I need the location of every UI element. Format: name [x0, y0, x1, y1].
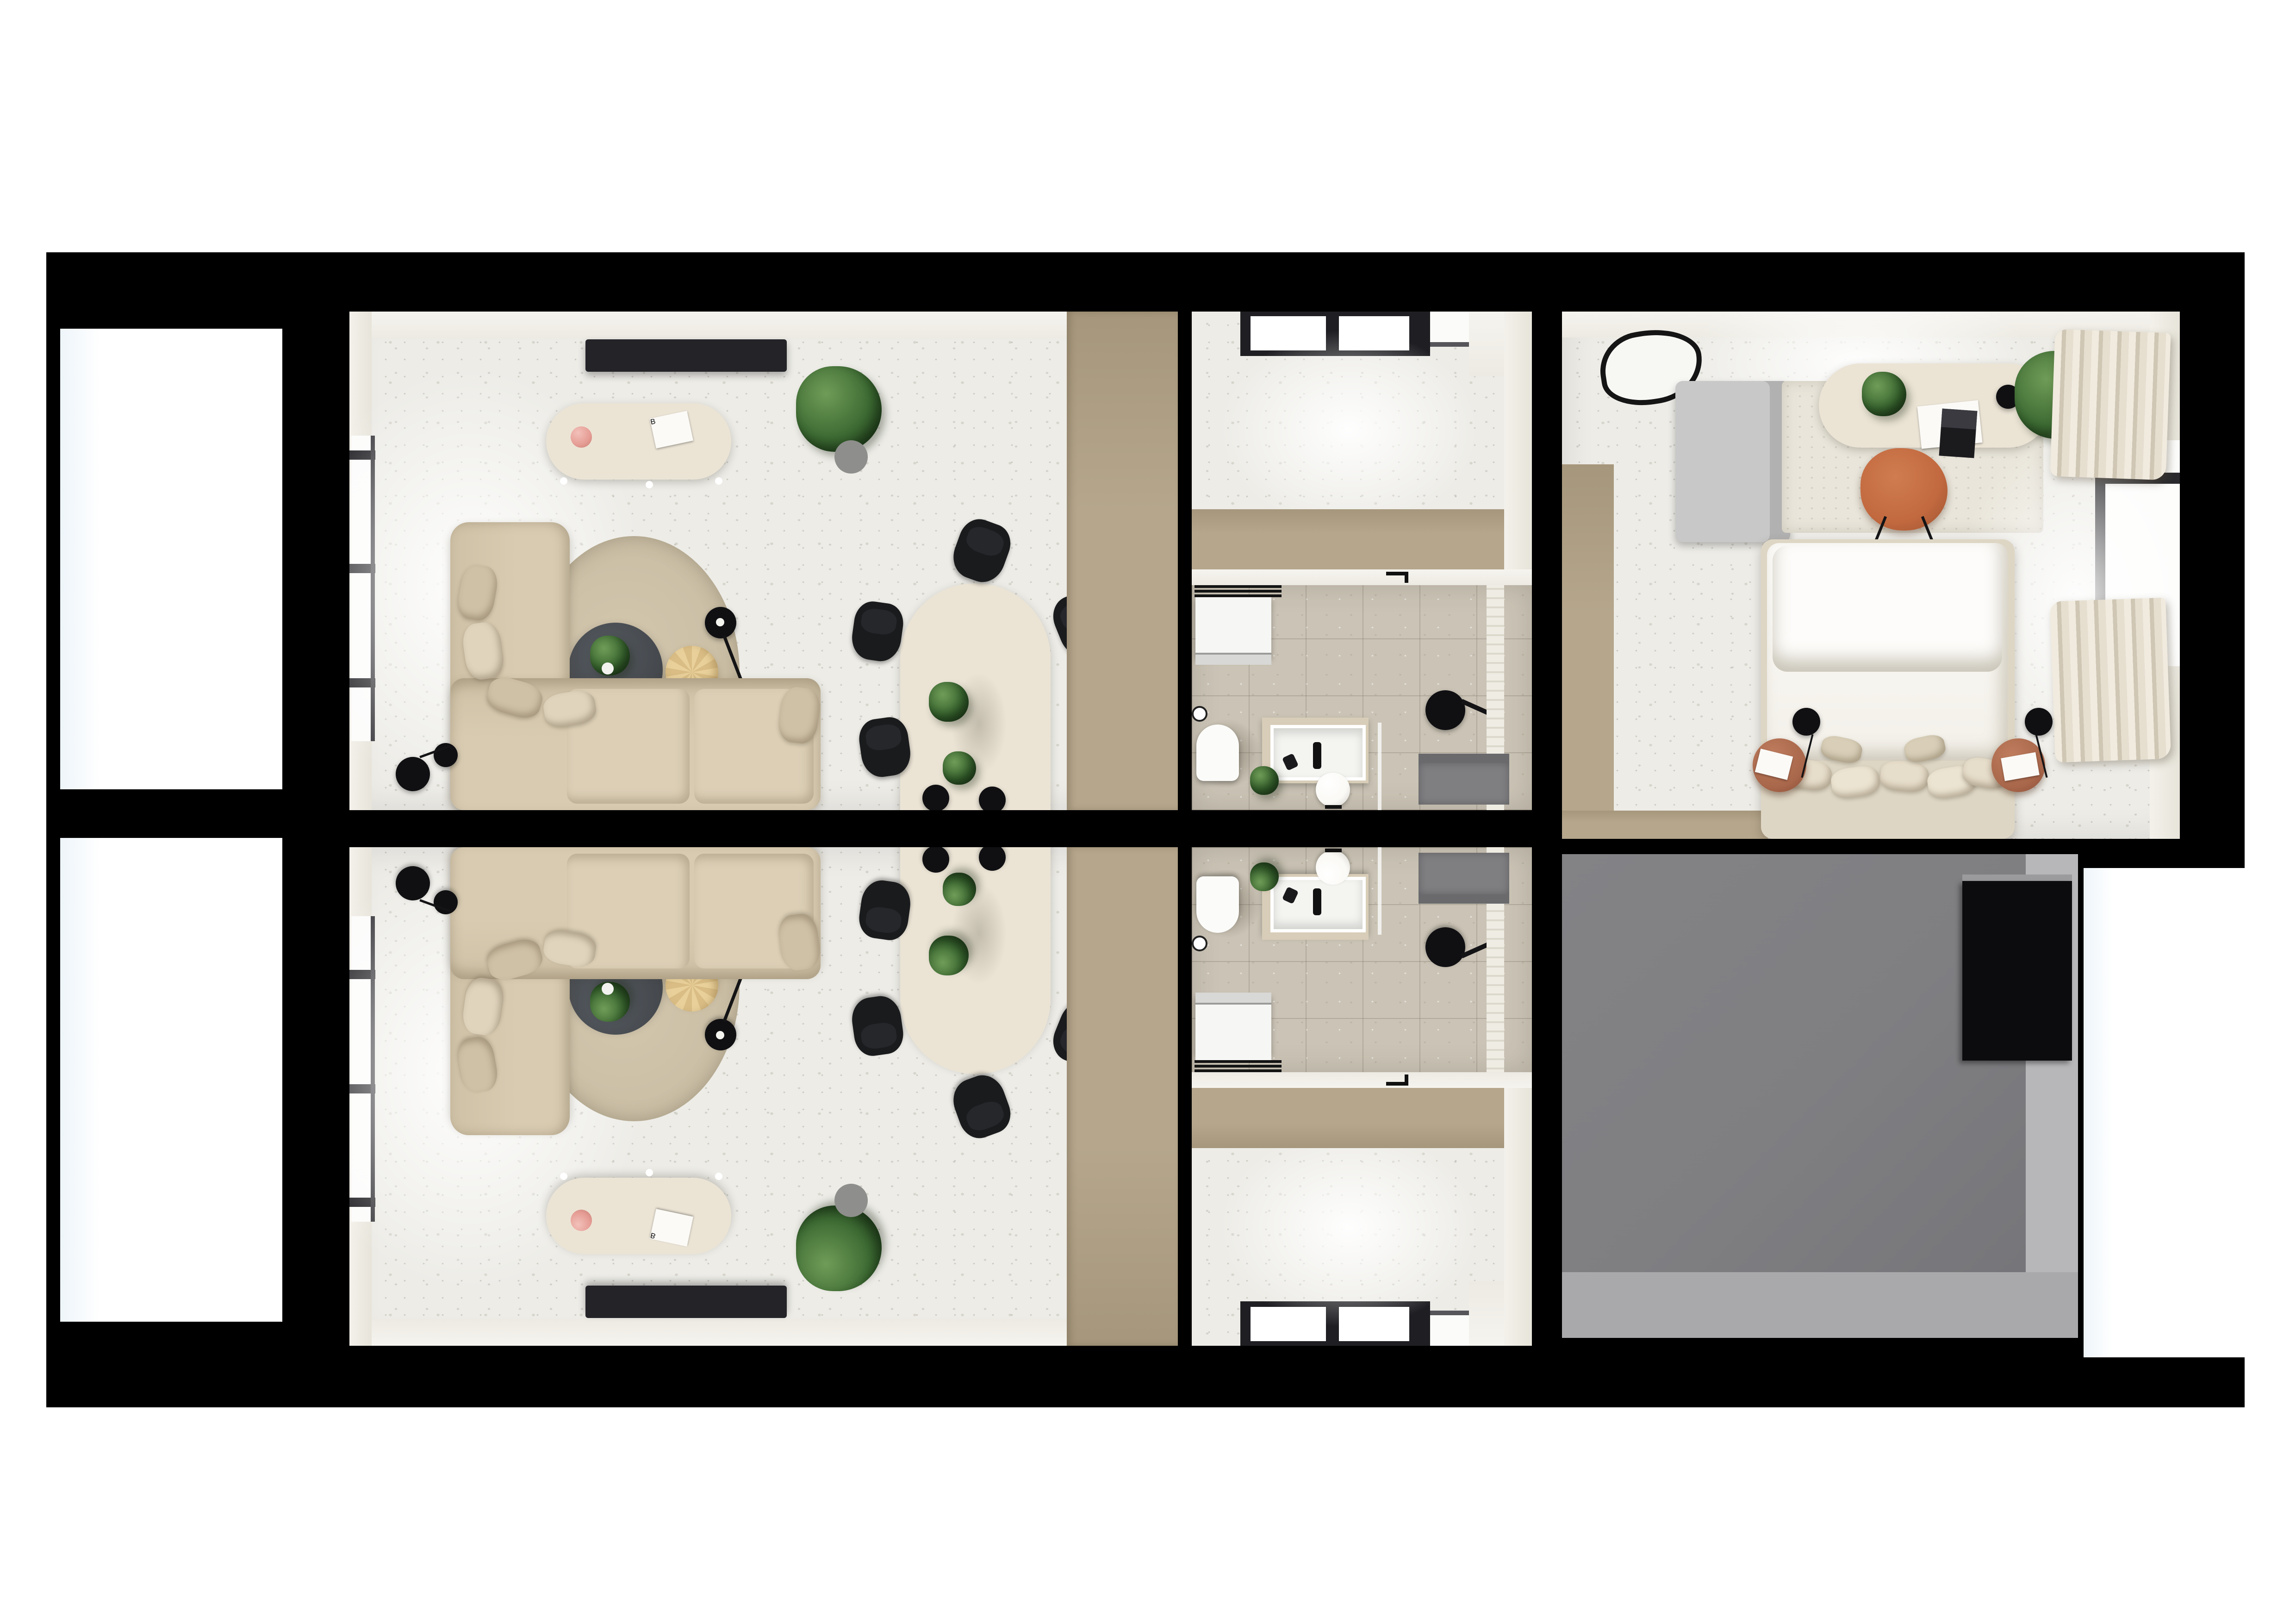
washing-machine-panel	[1195, 653, 1271, 665]
hall-side-pane	[1430, 312, 1469, 347]
service-duct	[1419, 754, 1509, 805]
tv-panel	[585, 339, 787, 372]
ball-lamp-base	[1325, 805, 1342, 809]
window-glass	[351, 436, 373, 741]
window-frame-edge	[371, 916, 375, 1222]
dining-table-plant	[929, 682, 969, 722]
bedroom-curtain	[2050, 598, 2171, 763]
entry-floor-strip	[1067, 312, 1178, 810]
dining-table-plant	[943, 751, 976, 785]
door-handle-stem	[1405, 1074, 1408, 1086]
wardrobe	[1675, 381, 1790, 542]
bathroom-plant	[1250, 862, 1279, 891]
living-room-a: B	[349, 312, 1178, 810]
coffee-table-vase	[602, 662, 614, 675]
daylight-right-bottom	[2084, 868, 2245, 1357]
console-leg	[560, 1173, 567, 1180]
hall-bath-contents	[1192, 847, 1532, 1346]
toilet	[1196, 876, 1239, 933]
wall-sconce	[1792, 708, 1820, 736]
bedroom-curtain	[2050, 329, 2171, 481]
hall-window-pane	[1251, 316, 1326, 350]
hall-bath-b	[1192, 847, 1532, 1346]
faucet	[1313, 888, 1321, 915]
daylight-left-top	[60, 329, 282, 789]
duvet-fold	[1773, 546, 2002, 672]
plant-pot	[834, 1184, 868, 1217]
toilet-paper-holder	[1192, 936, 1207, 951]
living-room-contents: B	[349, 847, 1178, 1346]
top-wall	[372, 1319, 1178, 1346]
washing-machine-panel	[1195, 993, 1271, 1005]
console-leg	[715, 477, 722, 485]
arc-floor-lamp-bulb	[716, 1031, 724, 1039]
hall-bath-a	[1192, 312, 1532, 810]
rain-shower-head	[1425, 690, 1465, 730]
hall-window-pane	[1339, 316, 1409, 350]
hall-right-wall	[1504, 1088, 1532, 1346]
hall-window-glow	[1220, 1128, 1479, 1327]
pink-vase	[571, 426, 592, 448]
dining-chair	[947, 1069, 1016, 1143]
hall-doormat-floor	[1192, 509, 1504, 569]
living-room-contents: B	[349, 312, 1178, 810]
wall-lamp	[396, 866, 430, 900]
hall-window-pane	[1339, 1307, 1409, 1341]
rain-shower-head	[1425, 927, 1465, 967]
toilet	[1196, 725, 1239, 781]
utility-floor-main	[1562, 854, 2026, 1272]
tv-panel	[585, 1286, 787, 1318]
shower-glass	[1378, 847, 1381, 935]
bedroom-corridor-foot	[1562, 811, 1768, 839]
dining-chair	[849, 993, 906, 1058]
ball-lamp	[1316, 773, 1350, 807]
shower-glass	[1378, 723, 1381, 810]
fiddle-leaf-plant	[796, 1206, 882, 1291]
arc-floor-lamp-bulb	[716, 618, 724, 626]
floorplan-canvas: B	[0, 0, 2296, 1624]
hall-window-pane	[1251, 1307, 1326, 1341]
door-handle-stem	[1405, 572, 1408, 583]
dining-chair	[849, 599, 906, 664]
desk-plant	[1862, 372, 1906, 416]
dining-table-plant	[943, 873, 976, 906]
pink-vase	[571, 1210, 592, 1231]
window-glass	[351, 916, 373, 1222]
dining-chair	[947, 514, 1016, 588]
wall-lamp	[396, 757, 430, 791]
entry-floor-strip	[1067, 847, 1178, 1346]
bathroom-plant	[1250, 766, 1279, 795]
washing-machine	[1195, 597, 1271, 657]
art-book-letter: B	[650, 1231, 656, 1240]
console-leg	[646, 481, 653, 488]
dining-table-plant	[929, 936, 969, 975]
top-wall	[372, 312, 1178, 338]
laptop	[1939, 408, 1978, 458]
ball-lamp-base	[1325, 849, 1342, 852]
office-chair	[1860, 448, 1948, 531]
hall-bath-contents	[1192, 312, 1532, 810]
utility-room	[1562, 854, 2078, 1338]
hall-right-wall	[1504, 312, 1532, 569]
planter-pot	[922, 785, 949, 810]
hall-bath-wall	[1192, 569, 1532, 585]
bedroom	[1562, 312, 2180, 839]
washing-machine	[1195, 1000, 1271, 1060]
hall-bath-wall	[1192, 1072, 1532, 1088]
dark-wall-opening	[1962, 881, 2072, 1061]
daylight-left-bottom	[60, 838, 282, 1322]
wire-shelf	[1195, 585, 1282, 597]
console-leg	[646, 1169, 653, 1176]
console-leg	[560, 477, 567, 485]
hall-doormat-floor	[1192, 1088, 1504, 1148]
window-frame-edge	[371, 436, 375, 741]
faucet	[1313, 742, 1321, 769]
hall-side-pane	[1430, 1311, 1469, 1346]
ball-lamp	[1316, 850, 1350, 885]
wire-shelf	[1195, 1060, 1282, 1072]
wall-sconce	[2025, 708, 2053, 736]
utility-floor-light-bottom	[1562, 1272, 2078, 1338]
plant-pot	[834, 440, 868, 474]
coffee-table-vase	[602, 983, 614, 995]
toilet-paper-holder	[1192, 706, 1207, 722]
art-book-letter: B	[650, 418, 656, 426]
service-duct	[1419, 853, 1509, 904]
console-leg	[715, 1173, 722, 1180]
hall-window-glow	[1220, 330, 1479, 529]
fiddle-leaf-plant	[796, 366, 882, 452]
living-room-b: B	[349, 847, 1178, 1346]
planter-pot	[979, 787, 1006, 810]
bedroom-corridor-strip	[1562, 464, 1614, 839]
